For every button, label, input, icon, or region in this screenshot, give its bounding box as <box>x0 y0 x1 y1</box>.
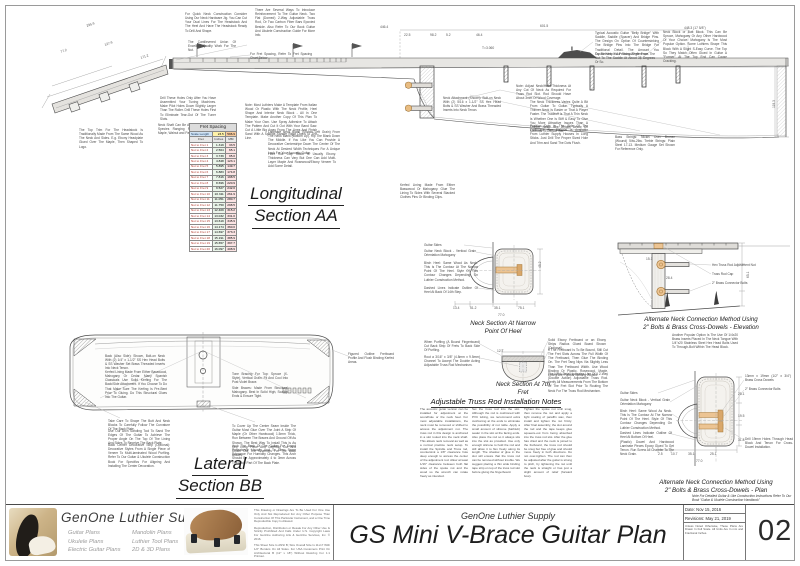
dimension-label: 77.0 <box>696 459 702 463</box>
dimension-label: T=3.060 <box>482 46 494 50</box>
annotation-note: Note: Adjust Neck/Heel Thickness At Any … <box>516 84 571 101</box>
annotation-note: 2" Brass Connector Bolts <box>712 281 756 285</box>
legal-paragraph: This Sheet Size Is ANSI B; Size Overall … <box>254 544 330 559</box>
truss-notes-columns: The acoustic guitar version can be insta… <box>420 408 572 479</box>
dimension-label: 10.7 <box>671 452 677 456</box>
annotation-note: Rout a 3/16" x 3/8" (4.8mm x 9.5mm) Chan… <box>424 355 480 367</box>
dimension-label: 35.1 <box>688 452 694 456</box>
dimension-label: 446.4 <box>380 25 388 29</box>
date-row: Date: Nov 15, 2016 <box>683 505 745 514</box>
annotation-note: There Are Several Ways To Introduce Rein… <box>255 8 315 37</box>
annotation-note: Kerfed Lining Made From Either Basswood … <box>400 183 455 200</box>
truss-notes-title: Adjustable Truss Rod Installation Notes <box>418 397 574 406</box>
dimension-label: 46.4 <box>476 33 482 37</box>
annotation-note: The Cantilevered Union Of Excellent Qual… <box>188 40 236 52</box>
annotation-note: Neck Attachment (Shown): Bolt-on Neck Wi… <box>443 96 501 113</box>
annotation-note: Dashed Lines Indicate Outline Of Heel At… <box>424 286 478 294</box>
legal-paragraph: This Drawing or Drawings Are To Be Used … <box>254 509 330 524</box>
dimension-label: 13.4 <box>453 306 459 310</box>
headstock-photo <box>9 508 57 556</box>
dimension-label: 15.1 <box>646 257 652 261</box>
annotation-note: The Top Trim For The Headstock Is Tradit… <box>79 128 143 149</box>
lateral-section-label: Lateral Section BB <box>158 454 282 499</box>
annotation-note: For Quick Neck Construction Consider Usi… <box>185 12 247 33</box>
alt-elevation-label: Alternate Neck Connection Method Using2"… <box>612 316 790 332</box>
dimension-label: 75.1 <box>518 306 524 310</box>
neck-narrow-label: Neck Section At NarrowPoint Of Heel <box>462 320 544 336</box>
fret-cell: 408.9 <box>225 246 236 251</box>
annotation-note: Guitar Sides <box>424 243 464 247</box>
annotation-note: Guitar Neck Block - Vertical Grain Orien… <box>424 249 476 257</box>
dimension-label: 65.1 <box>746 272 750 278</box>
title-block: GenOne Luthier Supplies Guitar PlansUkul… <box>6 504 794 560</box>
dimension-label: 448.3 (17 5/8") <box>684 26 706 30</box>
truss-note-column: The acoustic guitar version can be insta… <box>420 408 468 479</box>
annotation-note: Kerfed Lining Made From Either Basswood,… <box>105 370 167 399</box>
dimension-label: 28.4 <box>666 276 672 280</box>
dimension-label: 22.5 <box>404 33 410 37</box>
neck-section-7th-drawing <box>480 341 548 385</box>
annotation-note: Guitar Neck Block - Vertical Grain Orien… <box>620 398 670 406</box>
alt-plan-label: Alternate Neck Connection Method Using2"… <box>646 479 786 495</box>
plan-type-item: Electric Guitar Plans <box>68 546 121 555</box>
annotation-note: Another Popular Option Is The Use Of 1/4… <box>672 333 738 350</box>
annotation-note: Drill 19mm Holes Through Head Block And … <box>745 437 793 449</box>
annotation-note: 2" Brass Connector Bolts <box>745 387 789 391</box>
titleblock-divider <box>745 505 746 560</box>
dimension-label: 601.5 <box>540 24 548 28</box>
annotation-note: Guitar Sides <box>620 391 658 395</box>
fret-table-title: Fret Spacing <box>190 124 237 132</box>
annotation-note: Figured Outline Fretboard Profile And Fl… <box>348 352 394 364</box>
fret-cell: 16.097 <box>212 246 225 251</box>
annotation-note: Birch Heel: Same Wood As Neck. This Is T… <box>424 261 478 282</box>
dimension-label: 12.7 <box>497 349 503 353</box>
dimension-label: 98.2 <box>430 33 436 37</box>
annotation-note: Position Dots In The Side Of The Fretboa… <box>530 124 588 145</box>
annotation-note: (Plastic) Dowel And Hardwood Laminate Pi… <box>620 440 674 457</box>
plan-type-item: Mandolin Plans <box>132 529 178 538</box>
annotation-note: Tone Bracing For Top: Spruce (X-Style), … <box>232 372 288 384</box>
sheet-number: 02 <box>758 515 792 548</box>
plan-type-item: Guitar Plans <box>68 529 121 538</box>
annotation-note: Birch Heel: Same Wood As Neck. This Is T… <box>620 409 672 430</box>
dimension-label: 77.0 <box>498 313 504 317</box>
annotation-note: The Neck Detail Indicates Use Of A 2-Way… <box>548 372 608 393</box>
legal-fine-print: This Drawing or Drawings Are To Be Used … <box>254 509 330 562</box>
titleblock-company: GenOne Luthier Supply <box>333 511 683 521</box>
dimension-label: 45.2 <box>538 262 542 268</box>
annotation-note: Try To Keep Your String Angle From The N… <box>595 52 655 64</box>
dimension-label: 25.1 <box>710 452 716 456</box>
fret-cell: Nut to Fret 20 <box>190 246 213 251</box>
annotation-note: Dashed Lines Indicate Outline Of Heel At… <box>620 431 672 439</box>
truss-note-column: Set the truss rod into the slot. Althoug… <box>472 408 520 479</box>
plan-type-item: Ukulele Plans <box>68 538 121 547</box>
dimension-label: 19.5 <box>738 414 744 418</box>
dimension-label: 25.1 <box>738 392 744 396</box>
annotation-note: Side Braces: Made From Structural Mahoga… <box>232 386 288 398</box>
dimension-label: 5.2 <box>446 33 451 37</box>
plan-type-item: Luthier Tool Plans <box>132 538 178 547</box>
dimension-label: 35.1 <box>494 306 500 310</box>
handbook-note: Note For Detailed Guitar & Uke Construct… <box>692 494 792 503</box>
fret-row: Nut to Fret 2016.097408.9 <box>190 246 237 251</box>
annotation-note: Back (Also Side): Shown, Bolt-on Neck Wi… <box>105 354 165 371</box>
mold-photo <box>184 508 248 555</box>
alt-connection-elevation-drawing <box>618 243 790 315</box>
titleblock-sheet-title: GS Mini V-Brace Guitar Plan <box>333 521 683 550</box>
annotation-note: Bass Strings: Nickel Over Bronze (Wound)… <box>615 135 675 152</box>
longitudinal-section-label: Longitudinal Section AA <box>238 184 354 229</box>
dimension-label: 51.2 <box>470 306 476 310</box>
revision-row: Revisions: May 21, 2019 <box>683 514 745 523</box>
dimension-label: 31.8 <box>738 438 744 442</box>
plan-types-column-2: Mandolin PlansLuthier Tool Plans2D & 3D … <box>132 529 178 555</box>
annotation-note: Neck Block or Butt Block. This Can Be Sp… <box>663 30 727 63</box>
annotation-note: When Purfling (A Bound Fingerboard) Cut … <box>424 340 480 352</box>
annotation-note: 13mm x 19mm (1/2" x 3/4") Brass Cross Do… <box>745 374 791 382</box>
annotation-note: Drill These Holes Only After You Have As… <box>160 96 216 121</box>
annotation-note: Hex Truss Rod Adjustment Nut <box>712 263 760 267</box>
plan-types-column-1: Guitar PlansUkulele PlansElectric Guitar… <box>68 529 121 555</box>
scale-note: Unless Noted Otherwise, These Plans Are … <box>683 523 745 537</box>
dimension-label: 119.3 <box>772 100 776 108</box>
dimension-label: 2.5 <box>658 452 663 456</box>
plan-type-item: 2D & 3D Plans <box>132 546 178 555</box>
truss-note-column: Tighten the spoke nut until snug, then r… <box>524 408 572 479</box>
legal-paragraph: Reproduction, Distribution or Resale For… <box>254 527 330 542</box>
drawing-sheet: For Quick Neck Construction Consider Usi… <box>0 0 800 566</box>
annotation-note: Fibre Dot Cap Stock Is Usually Ebony. Th… <box>268 152 336 169</box>
date-revision-cell: Date: Nov 15, 2016 Revisions: May 21, 20… <box>683 505 745 537</box>
annotation-note: For Fret Spacing, Refer To Fret Spacing … <box>250 52 312 60</box>
neck-7th-label: Neck Section At 7thFret <box>490 381 556 397</box>
fret-spacing-table: Fret Spacing Scale Length 23.5 596.9 Fre… <box>189 123 237 252</box>
